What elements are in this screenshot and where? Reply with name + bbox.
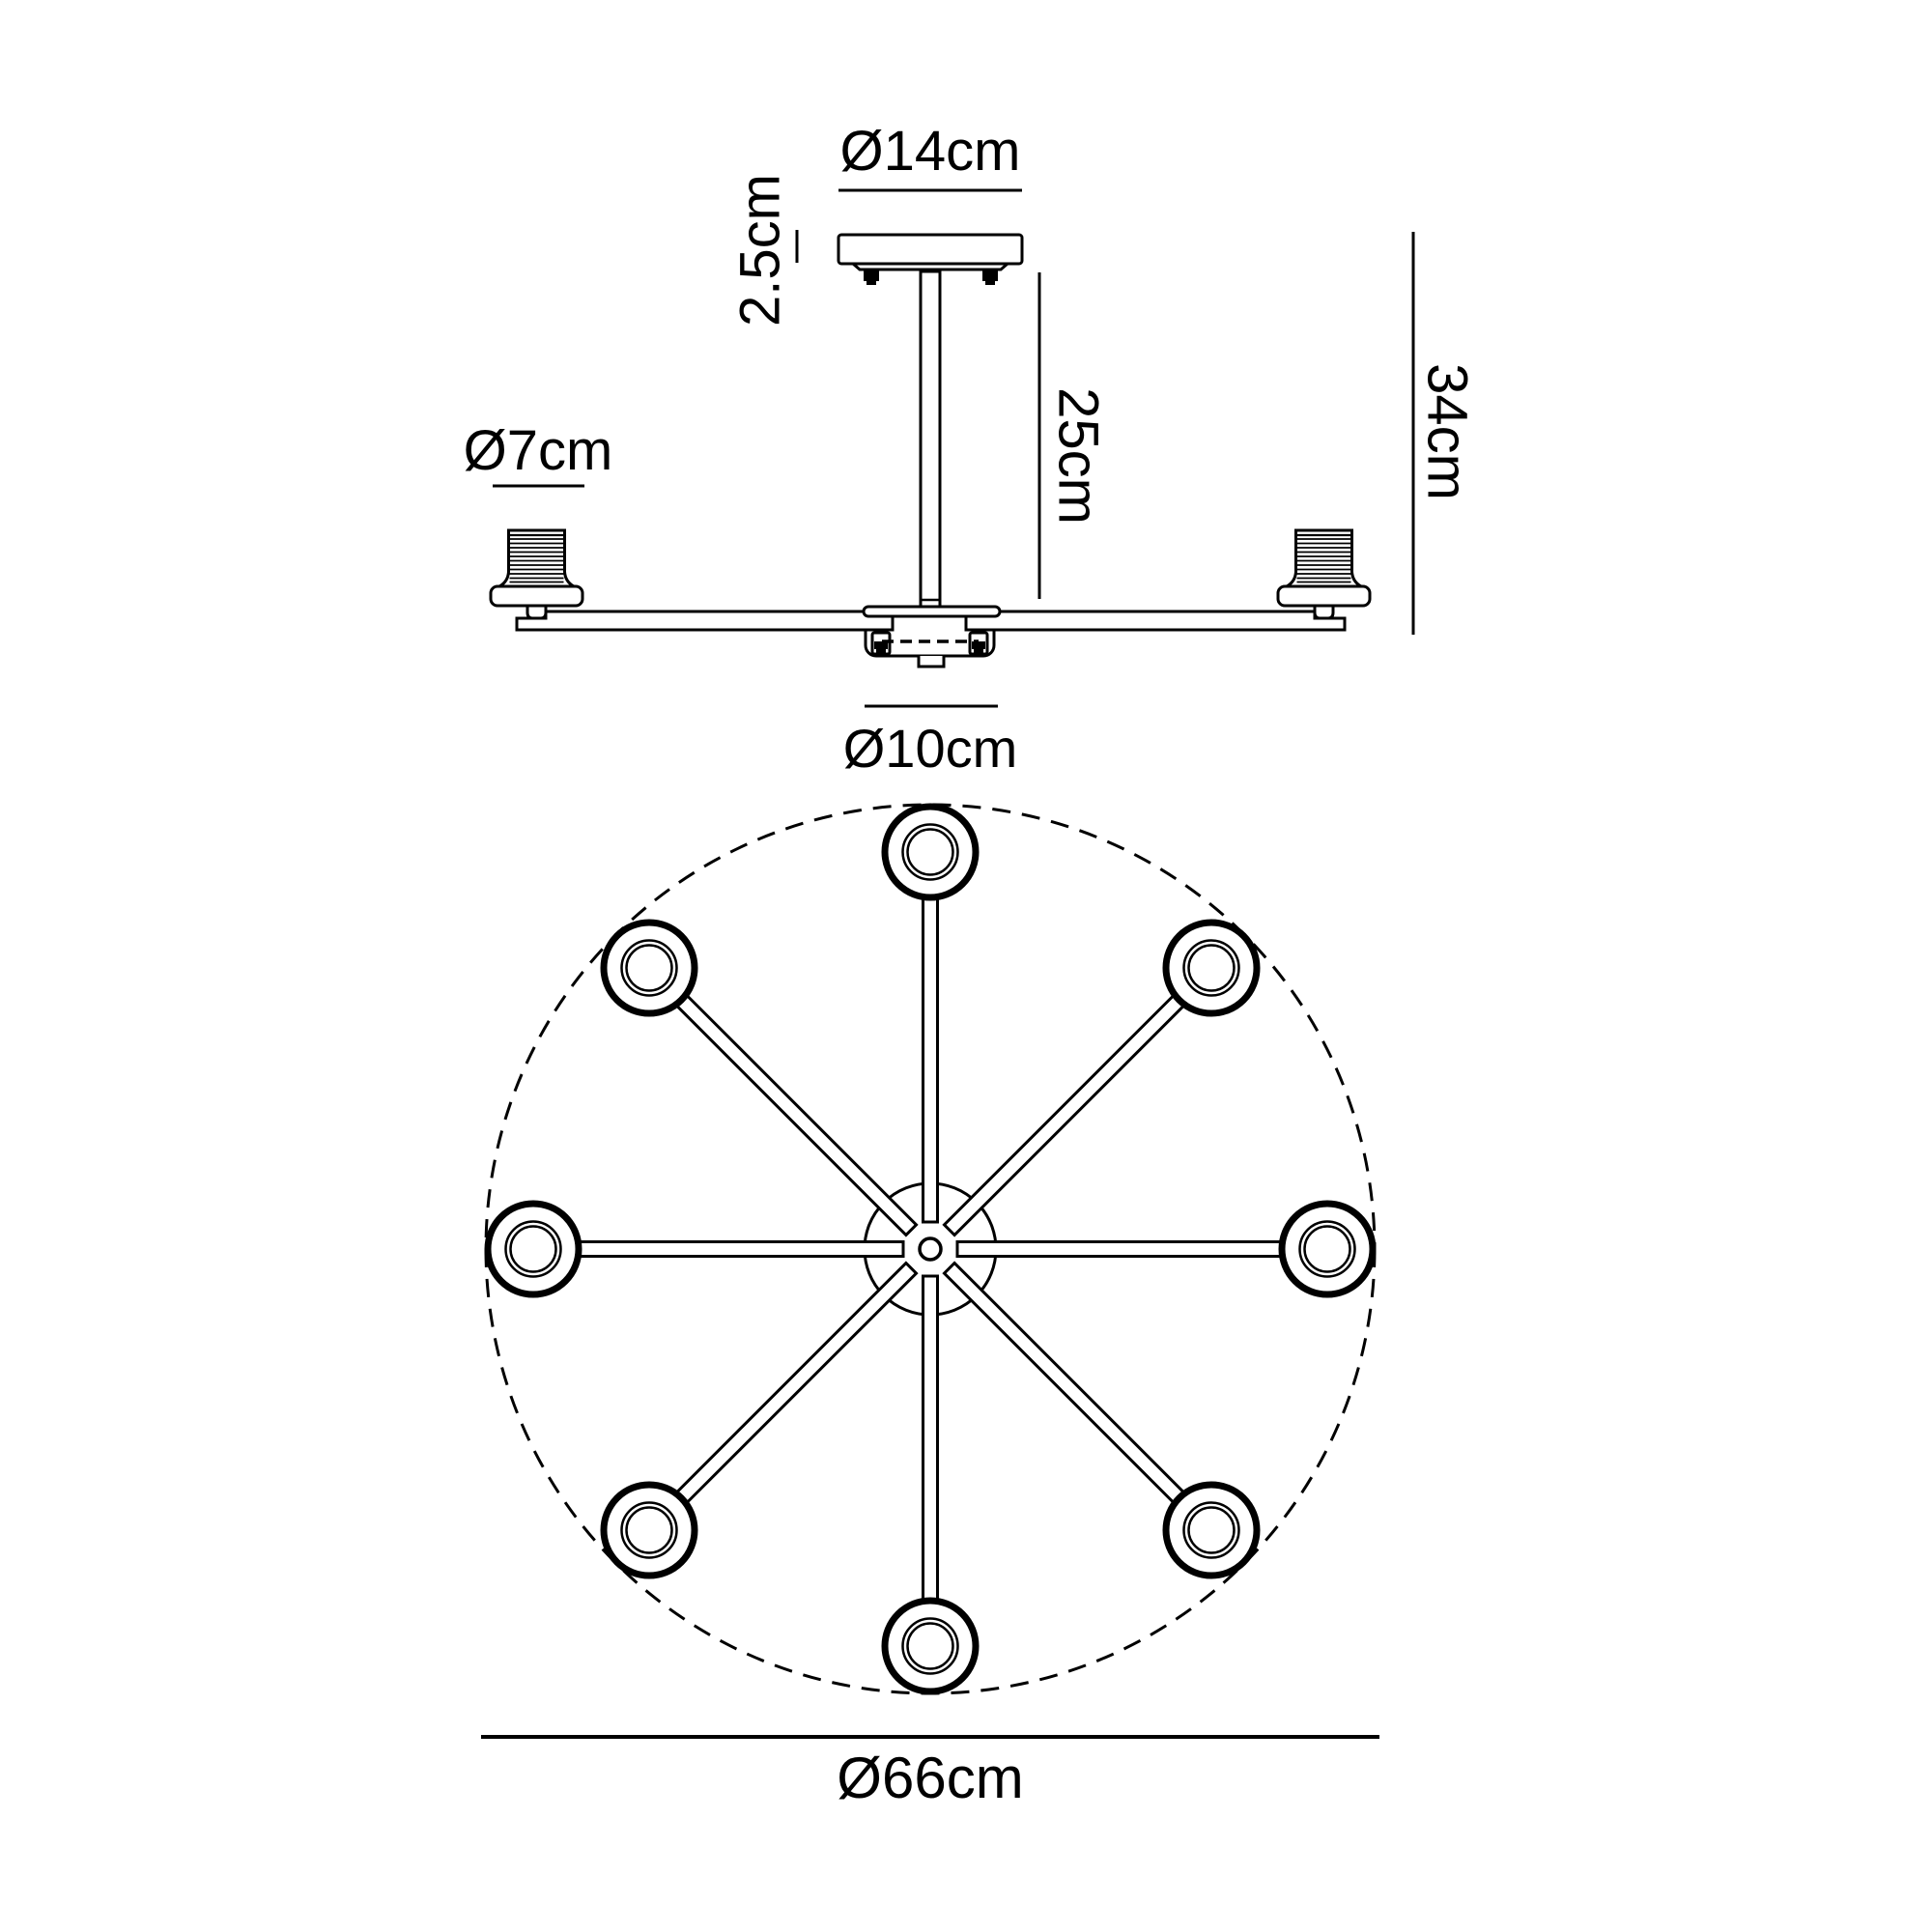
plan-holder-w (488, 1204, 579, 1294)
canopy-screw-left (864, 270, 879, 285)
lamp-socket-right (1278, 530, 1370, 618)
arm-left (517, 611, 893, 630)
plan-arm-se (944, 1263, 1183, 1502)
dim-rod-drop-label: 25cm (1047, 387, 1110, 525)
dim-hub-diameter-label: Ø10cm (843, 718, 1018, 779)
plan-holder-e (1282, 1204, 1373, 1294)
plan-arm-nw (676, 995, 916, 1235)
hub-screw-left (872, 633, 890, 654)
plan-arm-s (923, 1276, 938, 1601)
plan-holder-sw (604, 1485, 695, 1576)
canopy-lip (853, 264, 1008, 270)
technical-drawing-page: Ø14cm 2.5cm 25cm 34cm Ø7cm Ø10cm (0, 0, 1932, 1932)
ceiling-canopy-plate (838, 235, 1022, 264)
plan-holder-nw (604, 923, 695, 1013)
plan-arm-sw (676, 1263, 916, 1502)
side-elevation-view: Ø14cm 2.5cm 25cm 34cm Ø7cm Ø10cm (464, 120, 1479, 779)
plan-arm-n (923, 897, 938, 1222)
hub-screw-right (970, 633, 987, 654)
hub-top-plate (864, 607, 1000, 616)
plan-arm-e (957, 1242, 1282, 1257)
plan-arm-w (579, 1242, 903, 1257)
plan-holder-se (1166, 1485, 1257, 1576)
dim-socket-diameter-label: Ø7cm (464, 419, 613, 482)
ceiling-light-dimension-diagram: Ø14cm 2.5cm 25cm 34cm Ø7cm Ø10cm (0, 0, 1932, 1932)
plan-holder-ne (1166, 923, 1257, 1013)
plan-view: Ø66cm (481, 805, 1379, 1810)
dim-fixture-height-label: 34cm (1416, 363, 1479, 500)
arm-right (966, 611, 1345, 630)
hub-bottom-tab (919, 656, 944, 667)
plan-center-hole (920, 1238, 941, 1260)
dim-canopy-height-label: 2.5cm (729, 174, 792, 327)
plan-holder-n (885, 807, 976, 897)
plan-arm-ne (944, 995, 1183, 1235)
dim-canopy-diameter-label: Ø14cm (840, 120, 1021, 183)
suspension-rod (921, 271, 940, 607)
canopy-screw-right (982, 270, 998, 285)
plan-holder-s (885, 1601, 976, 1691)
dim-spread-diameter-label: Ø66cm (837, 1746, 1023, 1810)
lamp-socket-left (491, 530, 582, 618)
